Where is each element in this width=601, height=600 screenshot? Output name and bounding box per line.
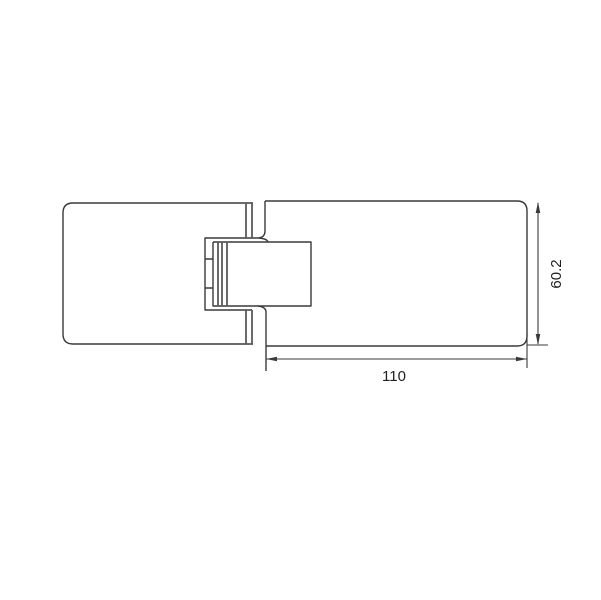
technical-drawing-canvas: 60.2 110 <box>0 0 601 600</box>
bracket-tick-marks <box>205 259 213 288</box>
height-dimension-label: 60.2 <box>548 259 565 288</box>
gasket-layer-lines <box>218 242 227 306</box>
width-dimension-label: 110 <box>382 368 406 385</box>
width-dimension-arrow-left <box>266 357 277 362</box>
width-dimension-arrow-right <box>516 357 527 362</box>
drawing-page: 60.2 110 <box>0 0 601 600</box>
bottom-tab-slot-lines <box>246 310 252 344</box>
left-leaf-outline <box>63 203 253 344</box>
height-dimension-arrow-bottom <box>536 334 541 345</box>
right-leaf-outline <box>265 201 527 346</box>
right-leaf-edge-upper <box>259 201 265 238</box>
right-leaf-edge-lower <box>258 306 266 371</box>
height-dimension-arrow-top <box>536 202 541 213</box>
top-tab-slot-lines <box>246 203 252 238</box>
